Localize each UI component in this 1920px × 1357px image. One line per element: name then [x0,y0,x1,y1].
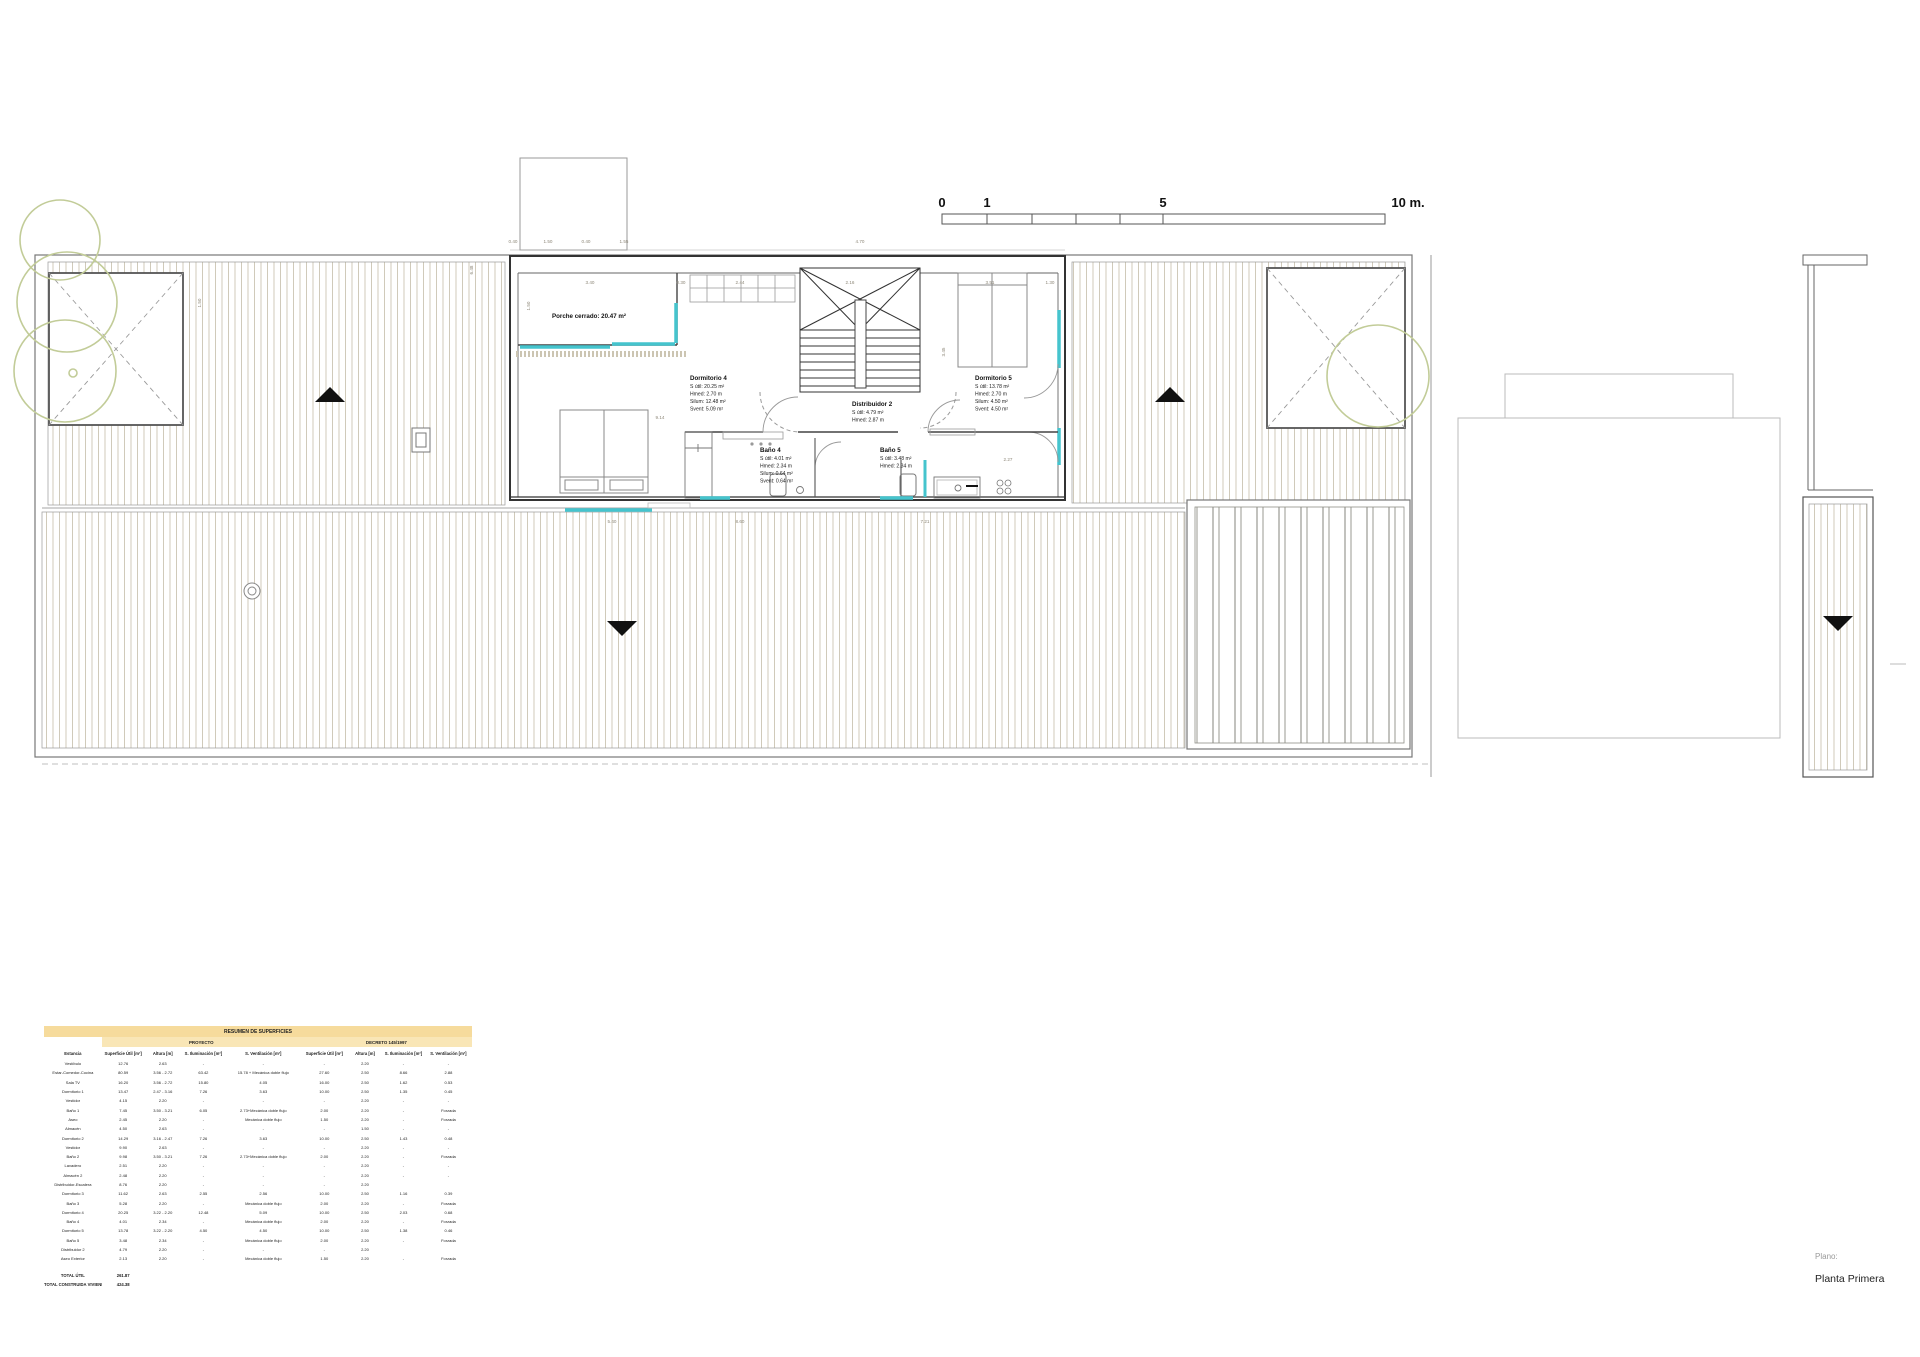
spacer-cell [145,1271,472,1281]
room-data-dormitorio-4: S útil: 20.25 m² [690,384,725,390]
table-cell: 20.25 [102,1208,145,1217]
table-row: Baño 44.012.34-Mecánica doble flujo2.002… [44,1217,472,1226]
table-cell: 10.00 [301,1189,348,1198]
room-data-bano-4: S útil: 4.01 m² [760,456,792,462]
table-cell: 1.50 [301,1115,348,1124]
table-cell: - [425,1096,472,1105]
floor-plan-page: 01510 m. 0.401.500.401.554.703.400.302.4… [0,0,1920,1357]
scale-tick-label: 10 m. [1391,195,1424,210]
dimension-label: 1.55 [620,239,629,244]
table-cell: Baño 2 [44,1152,102,1161]
table-cell: 3.48 [102,1236,145,1245]
table-cell: 3.63 [226,1133,301,1142]
roof-chimney [412,428,430,452]
table-cell: Vestidor [44,1143,102,1152]
annex-building [1803,255,1873,777]
table-cell: 1.35 [382,1087,425,1096]
table-cell: 11.62 [102,1189,145,1198]
table-cell: - [181,1236,226,1245]
table-cell: 2.20 [348,1180,382,1189]
table-cell: - [382,1171,425,1180]
rooflight-box [520,158,627,250]
table-cell: 2.20 [145,1096,181,1105]
table-cell: - [382,1217,425,1226]
table-cell: 80.59 [102,1068,145,1077]
table-cell: 6.05 [181,1105,226,1114]
spacer-cell [44,1037,102,1047]
surfaces-summary-table: RESUMEN DE SUPERFICIESPROYECTODECRETO 14… [44,1026,472,1290]
column-header: Estancia [44,1047,102,1059]
table-row: Vestíbulo12.762.63---2.20-- [44,1059,472,1068]
table-cell: 2.50 [348,1078,382,1087]
dimension-label: 3.51 [986,280,995,285]
table-row: Distribuidor-Escalera8.762.20---2.20 [44,1180,472,1189]
table-cell: - [181,1161,226,1170]
table-row: Vestidor4.152.20---2.20-- [44,1096,472,1105]
table-cell [425,1180,472,1189]
table-row: Almacén4.502.63---1.50-- [44,1124,472,1133]
project-header: PROYECTO [102,1037,301,1047]
spacer-cell [44,1264,472,1271]
table-cell: Mecánica doble flujo [226,1115,301,1124]
room-data-bano-4: Svent: 0.64 m² [760,479,793,485]
room-data-bano-4: Hmed: 2.34 m [760,464,792,470]
table-cell: 4.01 [102,1217,145,1226]
table-cell: 2.47 - 3.16 [145,1087,181,1096]
table-cell: Forzada [425,1115,472,1124]
room-data-dormitorio-4: Silum: 12.48 m² [690,399,726,405]
room-data-dormitorio-5: S útil: 13.78 m² [975,384,1010,390]
table-cell: - [301,1059,348,1068]
table-cell: 2.48 [102,1171,145,1180]
table-cell: 2.20 [145,1171,181,1180]
scale-tick-label: 1 [983,195,990,210]
table-cell: - [382,1161,425,1170]
plan-name: Planta Primera [1815,1273,1884,1285]
table-cell: - [425,1171,472,1180]
scale-tick-label: 5 [1159,195,1166,210]
scale-bar [942,214,1385,224]
table-cell: - [181,1171,226,1180]
room-data-distribuidor-2: Hmed: 2.87 m [852,418,884,424]
table-row: Dormitorio 113.472.47 - 3.167.263.6310.0… [44,1087,472,1096]
dimension-label: 4.70 [856,239,865,244]
table-cell: 2.20 [145,1245,181,1254]
roof-lower [42,500,1410,749]
table-cell: - [382,1236,425,1245]
table-cell: - [181,1059,226,1068]
table-cell: 9.98 [102,1152,145,1161]
table-cell: 2.45 [102,1115,145,1124]
table-cell: 1.62 [382,1078,425,1087]
room-data-dormitorio-4: Svent: 5.09 m² [690,407,723,413]
table-cell: 2.20 [348,1245,382,1254]
table-cell: - [181,1198,226,1207]
table-cell: Forzada [425,1236,472,1245]
table-cell: 2.73+Mecánica doble flujo [226,1152,301,1161]
table-cell: 2.34 [145,1236,181,1245]
dimension-label: 1.50 [526,301,531,310]
table-cell: - [382,1152,425,1161]
table-cell: 5.09 [226,1208,301,1217]
room-label-dormitorio-5: Dormitorio 5 [975,375,1012,382]
table-cell: 7.45 [102,1105,145,1114]
table-cell: Sala TV [44,1078,102,1087]
table-cell: - [425,1059,472,1068]
table-cell: 2.00 [301,1152,348,1161]
room-data-dormitorio-4: Hmed: 2.70 m [690,392,722,398]
table-cell: 2.20 [145,1254,181,1263]
table-cell: 3.16 - 2.47 [145,1133,181,1142]
table-cell: Dormitorio 3 [44,1189,102,1198]
dimension-label: 3.45 [941,347,946,356]
roof-left [14,200,505,505]
table-cell: 4.50 [102,1124,145,1133]
room-data-bano-5: Hmed: 2.34 m [880,464,912,470]
dimension-label: 2.16 [846,280,855,285]
column-header: Superficie Útil [m²] [102,1047,145,1059]
table-cell: 2.56 [226,1189,301,1198]
table-cell: 2.20 [348,1105,382,1114]
table-cell: - [382,1198,425,1207]
room-label-bano-5: Baño 5 [880,447,901,454]
table-cell: 2.51 [102,1161,145,1170]
table-cell: 0.39 [425,1189,472,1198]
table-cell: 2.00 [301,1236,348,1245]
table-cell: Aseo [44,1115,102,1124]
spacer-cell [145,1280,472,1290]
total-label: TOTAL CONSTRUIDA VIVIENDA [44,1280,102,1290]
table-row: Dormitorio 420.253.22 - 2.2012.485.0910.… [44,1208,472,1217]
table-cell [425,1245,472,1254]
table-cell: - [301,1245,348,1254]
table-cell: 2.20 [348,1143,382,1152]
table-cell: - [181,1245,226,1254]
table-cell: 0.53 [425,1078,472,1087]
table-cell: 2.20 [145,1161,181,1170]
pergola-slats [1195,507,1404,743]
room-data-dormitorio-5: Hmed: 2.70 m [975,392,1007,398]
table-row: Lavadero2.512.20---2.20-- [44,1161,472,1170]
table-cell: 2.03 [382,1208,425,1217]
room-data-dormitorio-5: Svent: 4.50 m² [975,407,1008,413]
table-cell: 10.00 [301,1226,348,1235]
table-row: Dormitorio 214.293.16 - 2.477.263.6310.0… [44,1133,472,1142]
table-cell: 0.68 [425,1208,472,1217]
table-cell: 3.56 - 2.72 [145,1068,181,1077]
table-row: Dormitorio 311.622.632.552.5610.002.501.… [44,1189,472,1198]
table-cell: 4.15 [102,1096,145,1105]
table-cell: 2.20 [348,1096,382,1105]
table-cell: 3.50 - 3.21 [145,1152,181,1161]
room-label-porche-cerrado: Porche cerrado: 20.47 m² [552,313,626,320]
table-cell: - [181,1115,226,1124]
table-cell: 5.28 [102,1198,145,1207]
table-cell: - [181,1180,226,1189]
room-data-dormitorio-5: Silum: 4.50 m² [975,399,1008,405]
table-cell: 2.34 [145,1217,181,1226]
dimension-label: 6.48 [469,265,474,274]
table-row: Baño 35.282.20-Mecánica doble flujo2.002… [44,1198,472,1207]
table-row: EstanciaSuperficie Útil [m²]Altura [m]S.… [44,1047,472,1059]
table-cell: 2.73+Mecánica doble flujo [226,1105,301,1114]
table-cell: Distribuidor 2 [44,1245,102,1254]
table-cell: 10.00 [301,1133,348,1142]
scale-bar-labels: 01510 m. [938,195,1424,210]
table-cell: - [301,1161,348,1170]
table-row: Almacén 22.482.20---2.20-- [44,1171,472,1180]
table-cell: 2.20 [145,1115,181,1124]
table-cell: 8.66 [382,1068,425,1077]
table-cell: Distribuidor-Escalera [44,1180,102,1189]
table-row: Vestidor9.902.63---2.20-- [44,1143,472,1152]
table-cell: - [226,1143,301,1152]
table-cell: 1.16 [382,1189,425,1198]
table-cell: 2.20 [348,1115,382,1124]
table-cell [382,1180,425,1189]
table-cell: Mecánica doble flujo [226,1217,301,1226]
table-cell: 2.50 [348,1133,382,1142]
dimension-label: 7.21 [921,519,930,524]
table-cell: 16.00 [301,1078,348,1087]
table-cell: 0.48 [425,1133,472,1142]
table-cell: 13.78 [102,1226,145,1235]
table-cell: Forzada [425,1198,472,1207]
table-cell: - [425,1143,472,1152]
table-cell: Dormitorio 1 [44,1087,102,1096]
total-label: TOTAL ÚTIL [44,1271,102,1281]
dimension-label: 1.50 [197,298,202,307]
table-cell: 4.50 [226,1226,301,1235]
table-cell: - [382,1096,425,1105]
table-cell: 16.20 [102,1078,145,1087]
table-cell: Almacén 2 [44,1171,102,1180]
table-cell: Aseo Exterior [44,1254,102,1263]
table-row: Baño 53.482.34-Mecánica doble flujo2.002… [44,1236,472,1245]
table-cell: 2.20 [348,1171,382,1180]
table-cell: 10.00 [301,1208,348,1217]
table-cell: 1.50 [348,1124,382,1133]
table-cell: Mecánica doble flujo [226,1236,301,1245]
table-row: Estar-Comedor-Cocina80.593.56 - 2.7263.4… [44,1068,472,1077]
title-block: Plano: Planta Primera [1815,1252,1884,1285]
table-cell: Baño 5 [44,1236,102,1245]
table-row: PROYECTODECRETO 145/1997 [44,1037,472,1047]
table-cell: 13.47 [102,1087,145,1096]
table-cell: Baño 1 [44,1105,102,1114]
table-cell: 4.50 [181,1226,226,1235]
table-cell: Dormitorio 5 [44,1226,102,1235]
table-cell: 2.63 [145,1124,181,1133]
table-cell: - [181,1124,226,1133]
table-cell: Dormitorio 2 [44,1133,102,1142]
column-header: Superficie Útil [m²] [301,1047,348,1059]
table-cell: - [382,1105,425,1114]
table-cell: 7.26 [181,1152,226,1161]
table-cell: - [226,1124,301,1133]
table-cell: 1.38 [382,1226,425,1235]
total-value: 424.38 [102,1280,145,1290]
table-cell: Almacén [44,1124,102,1133]
table-cell: - [301,1096,348,1105]
table-cell: 27.60 [301,1068,348,1077]
roof-right [1072,262,1429,503]
table-cell: 10.00 [301,1087,348,1096]
table-cell: Baño 3 [44,1198,102,1207]
table-cell: - [181,1254,226,1263]
column-header: S. Ventilación [m²] [425,1047,472,1059]
table-cell [382,1245,425,1254]
table-cell: Dormitorio 4 [44,1208,102,1217]
table-row: RESUMEN DE SUPERFICIES [44,1026,472,1037]
total-value: 261.87 [102,1271,145,1281]
table-cell: 2.20 [145,1180,181,1189]
table-cell: 2.20 [145,1198,181,1207]
table-cell: - [382,1254,425,1263]
dimension-label: 1.30 [1046,280,1055,285]
table-cell: - [181,1143,226,1152]
table-cell: - [382,1059,425,1068]
table-cell: Forzada [425,1217,472,1226]
table-row [44,1264,472,1271]
table-cell: 2.20 [348,1161,382,1170]
table-cell: 15.78 + Mecánica doble flujo [226,1068,301,1077]
table-cell: 2.50 [348,1087,382,1096]
table-cell: - [226,1245,301,1254]
column-header: S. Ventilación [m²] [226,1047,301,1059]
dimension-label: 3.40 [586,280,595,285]
table-cell: - [425,1124,472,1133]
table-cell: 12.76 [102,1059,145,1068]
table-cell: 8.76 [102,1180,145,1189]
table-cell: Estar-Comedor-Cocina [44,1068,102,1077]
table-cell: - [181,1217,226,1226]
dimension-label: 0.40 [509,239,518,244]
sill-ledge [648,503,690,508]
table-row: Dormitorio 513.783.22 - 2.204.504.5010.0… [44,1226,472,1235]
table-cell: 3.56 - 2.72 [145,1078,181,1087]
table-cell: 4.05 [226,1078,301,1087]
table-cell: - [425,1161,472,1170]
roof-hatch-area [42,512,1185,748]
table-cell: 0.45 [425,1087,472,1096]
table-cell: 2.20 [348,1198,382,1207]
dimension-label: 8.60 [736,519,745,524]
room-data-bano-5: S útil: 3.48 m² [880,456,912,462]
table-row: Distribuidor 24.792.20---2.20 [44,1245,472,1254]
table-cell: Forzada [425,1105,472,1114]
table-cell: 7.26 [181,1133,226,1142]
table-cell: 3.50 - 3.21 [145,1105,181,1114]
table-row: Baño 17.453.50 - 3.216.052.73+Mecánica d… [44,1105,472,1114]
table-cell: 3.22 - 2.20 [145,1208,181,1217]
table-cell: 15.80 [181,1078,226,1087]
room-label-dormitorio-4: Dormitorio 4 [690,375,727,382]
table-cell: 3.22 - 2.20 [145,1226,181,1235]
room-data-bano-4: Silum: 0.64 m² [760,471,793,477]
table-cell: Mecánica doble flujo [226,1254,301,1263]
table-cell: - [301,1180,348,1189]
dimension-label: 2.27 [1004,457,1013,462]
table-cell: 9.90 [102,1143,145,1152]
table-cell: - [226,1171,301,1180]
table-row: TOTAL CONSTRUIDA VIVIENDA424.38 [44,1280,472,1290]
table-cell: 2.20 [348,1217,382,1226]
dimension-label: 0.30 [677,280,686,285]
table-cell: 0.46 [425,1226,472,1235]
column-header: S. Iluminación [m²] [382,1047,425,1059]
table-cell: 2.50 [348,1208,382,1217]
table-row: Sala TV16.203.56 - 2.7215.804.0516.002.5… [44,1078,472,1087]
table-cell: 2.50 [348,1226,382,1235]
table-cell: - [382,1115,425,1124]
decreto-header: DECRETO 145/1997 [301,1037,472,1047]
table-cell: Mecánica doble flujo [226,1198,301,1207]
table-title: RESUMEN DE SUPERFICIES [44,1026,472,1037]
column-header: Altura [m] [348,1047,382,1059]
table-cell: 2.13 [102,1254,145,1263]
dimension-label: 9.14 [656,415,665,420]
table-row: Aseo2.452.20-Mecánica doble flujo1.502.2… [44,1115,472,1124]
column-header: S. Iluminación [m²] [181,1047,226,1059]
scale-tick-label: 0 [938,195,945,210]
table-cell: - [382,1143,425,1152]
table-cell: 7.26 [181,1087,226,1096]
table-cell: 2.20 [348,1059,382,1068]
table-cell: 2.00 [301,1198,348,1207]
table-cell: 2.20 [348,1236,382,1245]
table-row: TOTAL ÚTIL261.87 [44,1271,472,1281]
table-cell: 2.63 [145,1143,181,1152]
table-cell: Forzada [425,1152,472,1161]
table-cell: - [226,1161,301,1170]
table-cell: - [181,1096,226,1105]
dimension-label: 1.50 [544,239,553,244]
table-cell: 2.50 [348,1189,382,1198]
dimension-label: 5.40 [608,519,617,524]
table-cell: 63.42 [181,1068,226,1077]
table-cell: Vestidor [44,1096,102,1105]
table-cell: - [301,1124,348,1133]
table-cell: 2.20 [348,1152,382,1161]
room-label-distribuidor-2: Distribuidor 2 [852,401,893,408]
table-cell: Baño 4 [44,1217,102,1226]
table-row: Baño 29.983.50 - 3.217.262.73+Mecánica d… [44,1152,472,1161]
table-cell: - [226,1180,301,1189]
column-header: Altura [m] [145,1047,181,1059]
table-cell: 12.48 [181,1208,226,1217]
table-cell: 2.00 [301,1217,348,1226]
table-cell: 1.43 [382,1133,425,1142]
room-data-distribuidor-2: S útil: 4.79 m² [852,410,884,416]
plan-label: Plano: [1815,1252,1884,1261]
dimension-label: 0.40 [582,239,591,244]
table-cell: - [382,1124,425,1133]
table-cell: 2.88 [425,1068,472,1077]
resumen-table: RESUMEN DE SUPERFICIESPROYECTODECRETO 14… [44,1026,472,1290]
table-row: Aseo Exterior2.132.20-Mecánica doble flu… [44,1254,472,1263]
table-cell: - [301,1171,348,1180]
table-cell: 2.50 [348,1068,382,1077]
table-cell: 2.00 [301,1105,348,1114]
neighbor-buildings [1458,255,1906,777]
dimension-label: 2.44 [736,280,745,285]
table-cell: - [301,1143,348,1152]
table-cell: Vestíbulo [44,1059,102,1068]
pergola [1187,500,1410,749]
roof-drain-icon [244,583,260,599]
table-cell: 2.55 [181,1189,226,1198]
